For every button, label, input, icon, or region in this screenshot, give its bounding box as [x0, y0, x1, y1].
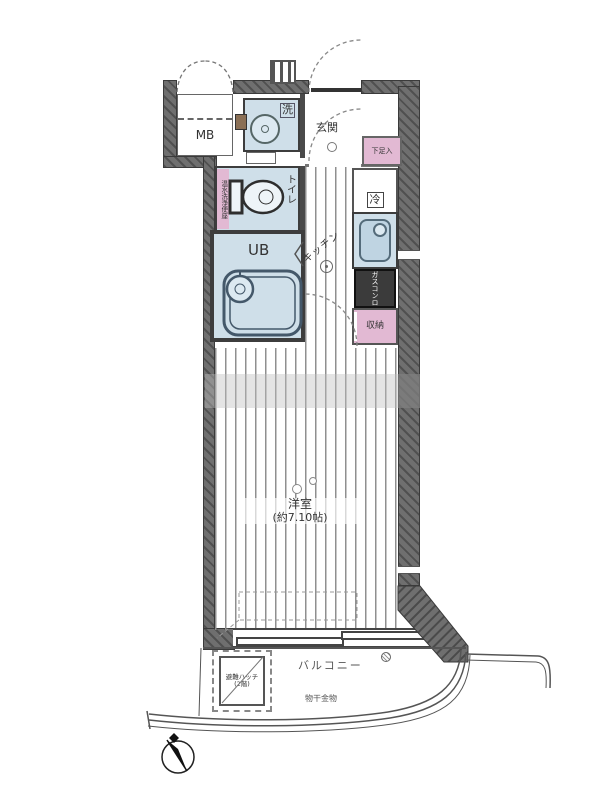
- evacuation-hatch-label: 避難ハッチ (2階): [226, 674, 259, 689]
- mb-room: MB: [177, 94, 233, 156]
- mb-dashed-divider: [178, 118, 232, 120]
- washlet-label: 温水洗浄便座: [219, 180, 226, 219]
- genkan-drain-icon: [327, 142, 337, 152]
- mb-label: MB: [196, 129, 215, 143]
- hatch-label-line2: (2階): [234, 680, 250, 688]
- stove-space: ガスコンロ: [354, 269, 396, 308]
- toilet-label: トイレ: [284, 174, 296, 204]
- right-wall-window: [398, 250, 420, 260]
- main-room-label: 洋室: [240, 498, 360, 512]
- laundry-space: 洗: [243, 98, 300, 152]
- washlet-tag: 温水洗浄便座: [217, 169, 229, 229]
- watermark-block: [398, 374, 420, 408]
- shoe-box-label: 下足入: [372, 147, 393, 155]
- gas-outlet-icon: [320, 260, 333, 273]
- vent-grille-icon: [270, 60, 296, 84]
- main-room-label-group: 洋室 (約7.10帖): [240, 498, 360, 524]
- main-room-size-label: (約7.10帖): [240, 512, 360, 525]
- entrance-door-swing-arc: [309, 40, 361, 92]
- compass-icon: [162, 733, 194, 773]
- balcony-label: バルコニー: [298, 660, 363, 673]
- storage-label: 収納: [366, 321, 384, 331]
- corridor-door-swing-arc: [309, 109, 361, 161]
- watermark-band: [205, 374, 420, 408]
- washer-drum-inner: [261, 125, 269, 133]
- faucet-icon: [373, 223, 387, 237]
- washer-drum-icon: [250, 114, 280, 144]
- stove-label: ガスコンロ: [371, 271, 379, 306]
- storage-door-line: [354, 312, 357, 341]
- sliding-panel-right: [341, 631, 447, 640]
- sliding-panel-left: [236, 637, 344, 646]
- partition-laundry-genkan: [300, 94, 305, 158]
- mb-door-arcs: [177, 61, 233, 92]
- ceiling-light-icon: [292, 484, 302, 494]
- entrance-door-leaf: [311, 88, 361, 92]
- wall-bottom-right-diagonal: [398, 586, 468, 662]
- laundry-label: 洗: [280, 103, 295, 118]
- kitchen-sink-unit: [352, 212, 398, 269]
- fridge-label: 冷: [367, 192, 384, 209]
- wall-bottom-left-stub: [203, 628, 235, 650]
- storage-box: 収納: [352, 308, 398, 345]
- entrance-label: 玄関: [316, 122, 338, 135]
- bath-label: UB: [248, 242, 269, 259]
- evacuation-hatch: 避難ハッチ (2階): [219, 656, 265, 706]
- balcony-drain-icon: [381, 652, 391, 662]
- wall-left-mb: [163, 80, 177, 168]
- small-meter-box: [246, 152, 276, 164]
- right-wall-window-2: [398, 566, 420, 574]
- floorplan-canvas: MB 洗 玄関 下足入 温水洗浄便座 トイレ UB キッチン 冷: [0, 0, 600, 800]
- water-heater-icon: [235, 114, 247, 130]
- ceiling-light-icon-2: [309, 477, 317, 485]
- laundry-pole-label: 物干金物: [305, 694, 337, 703]
- shoe-box: 下足入: [362, 136, 402, 166]
- gas-outlet-dot: [325, 265, 328, 268]
